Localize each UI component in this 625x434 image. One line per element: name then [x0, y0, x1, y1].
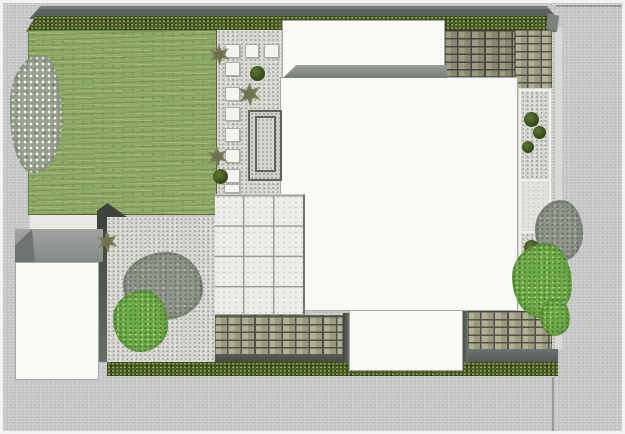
hedge-bottom — [107, 362, 558, 376]
stepping-stone — [225, 107, 240, 121]
garage — [349, 310, 463, 371]
shrub-green-court — [113, 290, 168, 352]
blossom-tree — [10, 55, 62, 173]
bush-round — [522, 141, 534, 153]
brick-underline-left — [215, 354, 350, 362]
planter-feature-inner — [255, 116, 276, 172]
house-main — [280, 77, 518, 311]
brick-paving-top-right — [515, 30, 552, 90]
brick-paving-top — [445, 30, 515, 77]
shed-path-gap — [30, 215, 97, 230]
stepping-stone — [225, 62, 240, 76]
stepping-stone — [225, 44, 240, 58]
stepping-stone — [225, 87, 240, 101]
tree-green-right-lower — [540, 298, 570, 336]
stepping-stone — [225, 149, 240, 163]
bush-round — [250, 66, 265, 81]
street-line-bottom-right — [552, 377, 554, 431]
stepping-stone — [264, 44, 279, 58]
stepping-stone — [225, 128, 240, 142]
street-line-top-right — [556, 5, 622, 7]
bush-round — [213, 169, 228, 184]
garden-plan-canvas — [0, 0, 625, 434]
brick-paving-bottom-left — [215, 315, 343, 355]
patio-grid — [215, 194, 305, 315]
shed — [15, 262, 99, 380]
stepping-stone — [245, 44, 259, 58]
stepping-stone — [224, 184, 240, 193]
flat-roof-band — [283, 65, 447, 78]
bush-round — [533, 126, 546, 139]
retaining-band-right — [468, 349, 558, 362]
bush-round — [524, 112, 539, 127]
